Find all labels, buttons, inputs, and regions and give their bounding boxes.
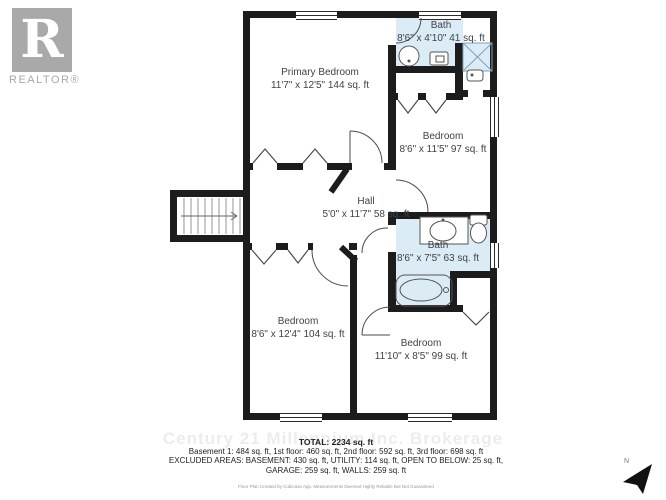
room-dims: 11'7" x 12'5" 144 sq. ft bbox=[240, 80, 400, 93]
room-name: Bath bbox=[378, 240, 498, 253]
disclaimer-text: Floor Plan Created by Cubicasa App. Meas… bbox=[36, 484, 636, 489]
window bbox=[280, 413, 322, 422]
wall bbox=[170, 190, 177, 242]
room-name: Primary Bedroom bbox=[240, 67, 400, 80]
wall bbox=[308, 243, 313, 250]
room-dims: 5'0" x 11'7" 58 sq. ft bbox=[316, 209, 416, 222]
wall bbox=[384, 163, 396, 170]
floor-plan-page: { "logo": { "letter": "R", "label": "REA… bbox=[0, 0, 666, 500]
small-sink-icon bbox=[467, 70, 483, 81]
wall bbox=[349, 243, 357, 250]
room-dims: 8'6" x 7'5" 63 sq. ft bbox=[378, 253, 498, 266]
wall bbox=[276, 243, 288, 250]
wall bbox=[170, 190, 250, 197]
room-name: Bedroom bbox=[228, 316, 368, 329]
wall bbox=[418, 93, 426, 100]
wall bbox=[170, 235, 250, 242]
wall bbox=[463, 90, 468, 97]
window bbox=[296, 11, 337, 20]
room-name: Bedroom bbox=[373, 131, 513, 144]
stairs bbox=[181, 198, 240, 234]
room-dims: 8'6" x 11'5" 97 sq. ft bbox=[373, 144, 513, 157]
room-name: Bath bbox=[376, 20, 506, 33]
room-name: Bedroom bbox=[351, 338, 491, 351]
shower-fill bbox=[463, 43, 492, 71]
wall bbox=[388, 93, 398, 100]
wall bbox=[250, 243, 252, 250]
room-label-bedroom-top-right: Bedroom 8'6" x 11'5" 97 sq. ft bbox=[373, 131, 513, 156]
wall bbox=[455, 43, 463, 100]
room-label-bath-top: Bath 8'6" x 4'10" 41 sq. ft bbox=[376, 20, 506, 45]
room-label-hall: Hall 5'0" x 11'7" 58 sq. ft bbox=[316, 196, 416, 221]
wall bbox=[250, 163, 253, 170]
window bbox=[408, 413, 452, 422]
window bbox=[419, 11, 461, 20]
realtor-logo-r: R bbox=[12, 10, 72, 70]
room-label-primary-bedroom: Primary Bedroom 11'7" x 12'5" 144 sq. ft bbox=[240, 67, 400, 92]
wall bbox=[388, 305, 452, 312]
wall bbox=[450, 305, 463, 312]
realtor-logo-text: REALTOR® bbox=[9, 74, 89, 86]
summary-garage-walls: GARAGE: 259 sq. ft, WALLS: 259 sq. ft bbox=[36, 466, 636, 475]
room-label-bath-middle: Bath 8'6" x 7'5" 63 sq. ft bbox=[378, 240, 498, 265]
wall bbox=[327, 163, 352, 170]
room-dims: 8'6" x 4'10" 41 sq. ft bbox=[376, 33, 506, 46]
wall bbox=[277, 163, 303, 170]
summary-excluded: EXCLUDED AREAS: BASEMENT: 430 sq. ft, UT… bbox=[36, 456, 636, 465]
room-name: Hall bbox=[316, 196, 416, 209]
room-dims: 11'10" x 8'5" 99 sq. ft bbox=[351, 351, 491, 364]
summary-floors: Basement 1: 484 sq. ft, 1st floor: 460 s… bbox=[36, 447, 636, 456]
room-label-bedroom-bottom-right: Bedroom 11'10" x 8'5" 99 sq. ft bbox=[351, 338, 491, 363]
realtor-logo: R bbox=[12, 8, 72, 72]
room-label-bedroom-bottom-left: Bedroom 8'6" x 12'4" 104 sq. ft bbox=[228, 316, 368, 341]
wall bbox=[483, 90, 497, 97]
summary-total: TOTAL: 2234 sq. ft bbox=[36, 438, 636, 447]
area-summary: TOTAL: 2234 sq. ft Basement 1: 484 sq. f… bbox=[36, 438, 636, 475]
room-dims: 8'6" x 12'4" 104 sq. ft bbox=[228, 329, 368, 342]
wall bbox=[446, 93, 463, 100]
